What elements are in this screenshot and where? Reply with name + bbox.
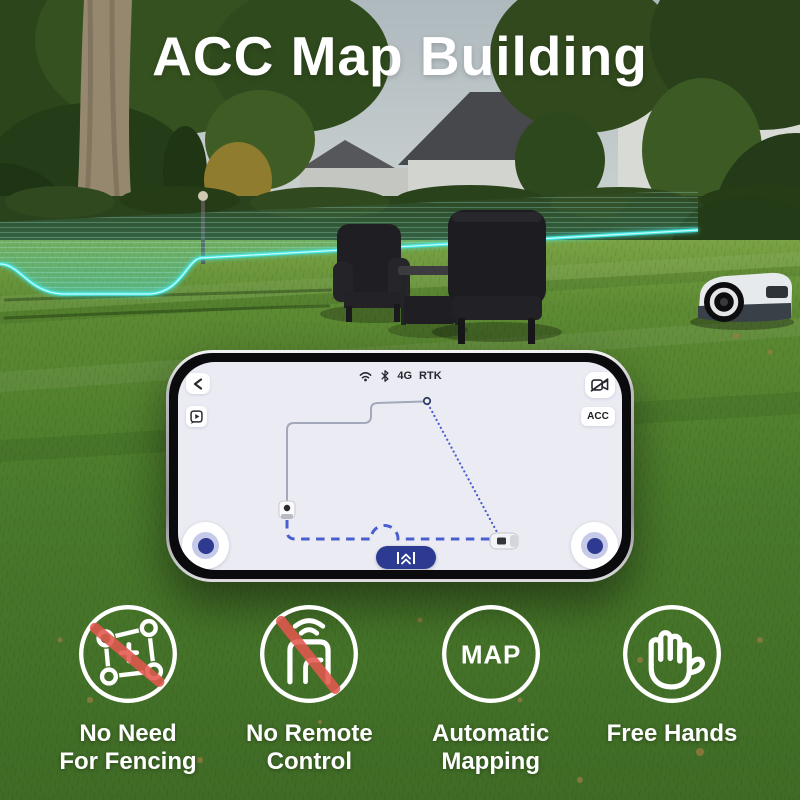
drive-forward-button[interactable] bbox=[376, 546, 436, 569]
double-chevron-up-icon bbox=[393, 550, 419, 566]
robot-mower-icon bbox=[490, 533, 518, 549]
feature-label: AutomaticMapping bbox=[432, 720, 549, 776]
acc-button[interactable]: ACC bbox=[581, 407, 615, 426]
feature-label: Free Hands bbox=[607, 720, 738, 748]
svg-text:MAP: MAP bbox=[460, 640, 520, 670]
hand-icon bbox=[620, 602, 724, 706]
path-start-point bbox=[424, 398, 430, 404]
chevron-left-icon bbox=[192, 378, 204, 390]
feature-label: No RemoteControl bbox=[246, 720, 373, 776]
joystick-knob bbox=[587, 538, 603, 554]
promo-image: ACC Map Building bbox=[0, 0, 800, 800]
camera-off-button[interactable] bbox=[585, 372, 615, 398]
wifi-icon bbox=[358, 370, 373, 382]
feature-auto-mapping: MAP AutomaticMapping bbox=[403, 602, 579, 776]
back-button[interactable] bbox=[186, 373, 210, 394]
feature-label: No NeedFor Fencing bbox=[59, 720, 196, 776]
remote-signal-crossed-icon bbox=[257, 602, 361, 706]
phone-bezel: 4G RTK bbox=[169, 353, 631, 579]
feature-free-hands: Free Hands bbox=[584, 602, 760, 776]
joystick-knob bbox=[198, 538, 214, 554]
dock-station-icon bbox=[279, 501, 295, 519]
rtk-status: RTK bbox=[419, 370, 442, 382]
app-screen: 4G RTK bbox=[178, 362, 622, 570]
feature-no-fencing: No NeedFor Fencing bbox=[40, 602, 216, 776]
page-title: ACC Map Building bbox=[0, 24, 800, 88]
phone-mockup: 4G RTK bbox=[166, 350, 634, 582]
feature-no-remote: No RemoteControl bbox=[221, 602, 397, 776]
video-guide-button[interactable] bbox=[186, 406, 207, 427]
joystick-ring bbox=[192, 532, 219, 559]
joystick-ring bbox=[581, 532, 608, 559]
right-joystick[interactable] bbox=[571, 522, 618, 569]
status-bar: 4G RTK bbox=[178, 369, 622, 383]
play-bubble-icon bbox=[189, 409, 204, 424]
camera-off-icon bbox=[590, 377, 610, 393]
map-canvas[interactable] bbox=[178, 362, 622, 570]
boundary-crossed-icon bbox=[76, 602, 180, 706]
left-joystick[interactable] bbox=[182, 522, 229, 569]
map-badge-icon: MAP bbox=[439, 602, 543, 706]
feature-list: No NeedFor Fencing No RemoteControl MAP … bbox=[0, 602, 800, 776]
network-status: 4G bbox=[397, 370, 412, 382]
bluetooth-icon bbox=[380, 369, 390, 383]
